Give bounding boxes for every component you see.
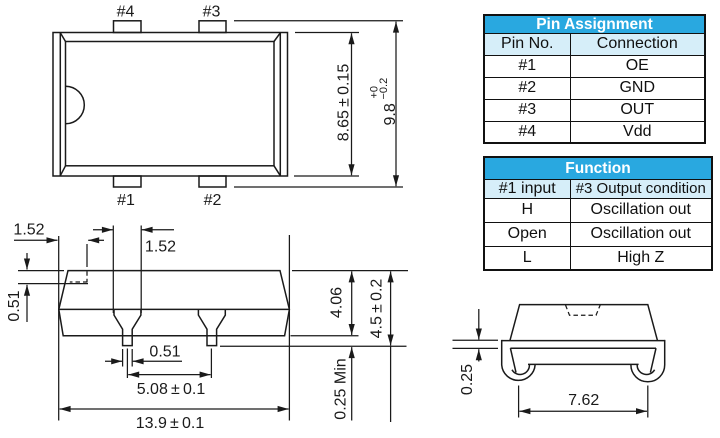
svg-text:4.06: 4.06 <box>329 287 346 318</box>
svg-text:−0.2: −0.2 <box>378 78 390 100</box>
svg-text:1.52: 1.52 <box>13 222 44 239</box>
svg-text:1.52: 1.52 <box>145 239 176 256</box>
svg-text:13.9 ± 0.1: 13.9 ± 0.1 <box>136 415 205 432</box>
svg-text:#2: #2 <box>204 192 222 209</box>
svg-text:0.25: 0.25 <box>459 364 476 395</box>
svg-text:#3: #3 <box>203 4 221 21</box>
svg-text:0.51: 0.51 <box>149 344 180 361</box>
svg-text:8.65 ± 0.15: 8.65 ± 0.15 <box>336 64 353 142</box>
svg-text:9.8: 9.8 <box>382 103 399 125</box>
svg-text:#4: #4 <box>117 4 135 21</box>
svg-text:#1: #1 <box>117 192 135 209</box>
svg-text:7.62: 7.62 <box>568 392 599 409</box>
svg-text:0.51: 0.51 <box>6 290 23 321</box>
svg-text:4.5 ± 0.2: 4.5 ± 0.2 <box>369 279 386 339</box>
svg-text:5.08 ± 0.1: 5.08 ± 0.1 <box>137 381 206 398</box>
svg-text:0.25 Min: 0.25 Min <box>333 358 350 419</box>
